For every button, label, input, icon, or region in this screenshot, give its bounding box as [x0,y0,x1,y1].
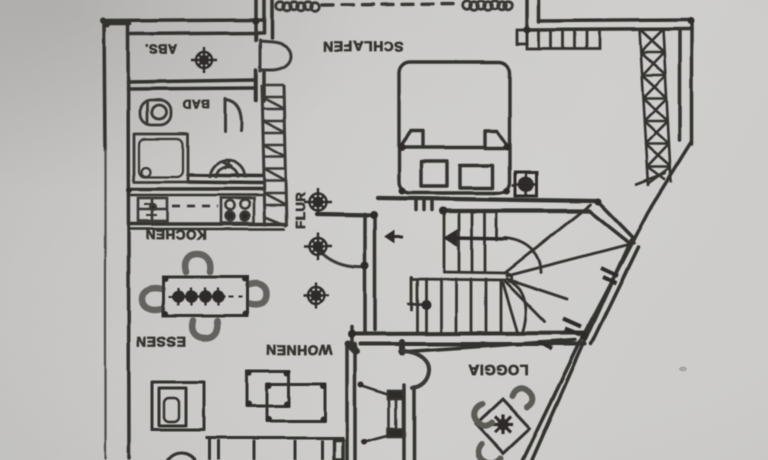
svg-text:KOCHEN: KOCHEN [145,227,207,242]
svg-text:LOGGIA: LOGGIA [468,361,528,377]
svg-text:FLUR: FLUR [293,192,308,229]
svg-text:BAD: BAD [182,97,210,111]
svg-text:ESSEN: ESSEN [136,334,186,350]
svg-text:WOHNEN: WOHNEN [266,342,333,358]
svg-text:SCHLAFEN: SCHLAFEN [322,39,403,55]
svg-text:ABS.: ABS. [145,42,177,56]
